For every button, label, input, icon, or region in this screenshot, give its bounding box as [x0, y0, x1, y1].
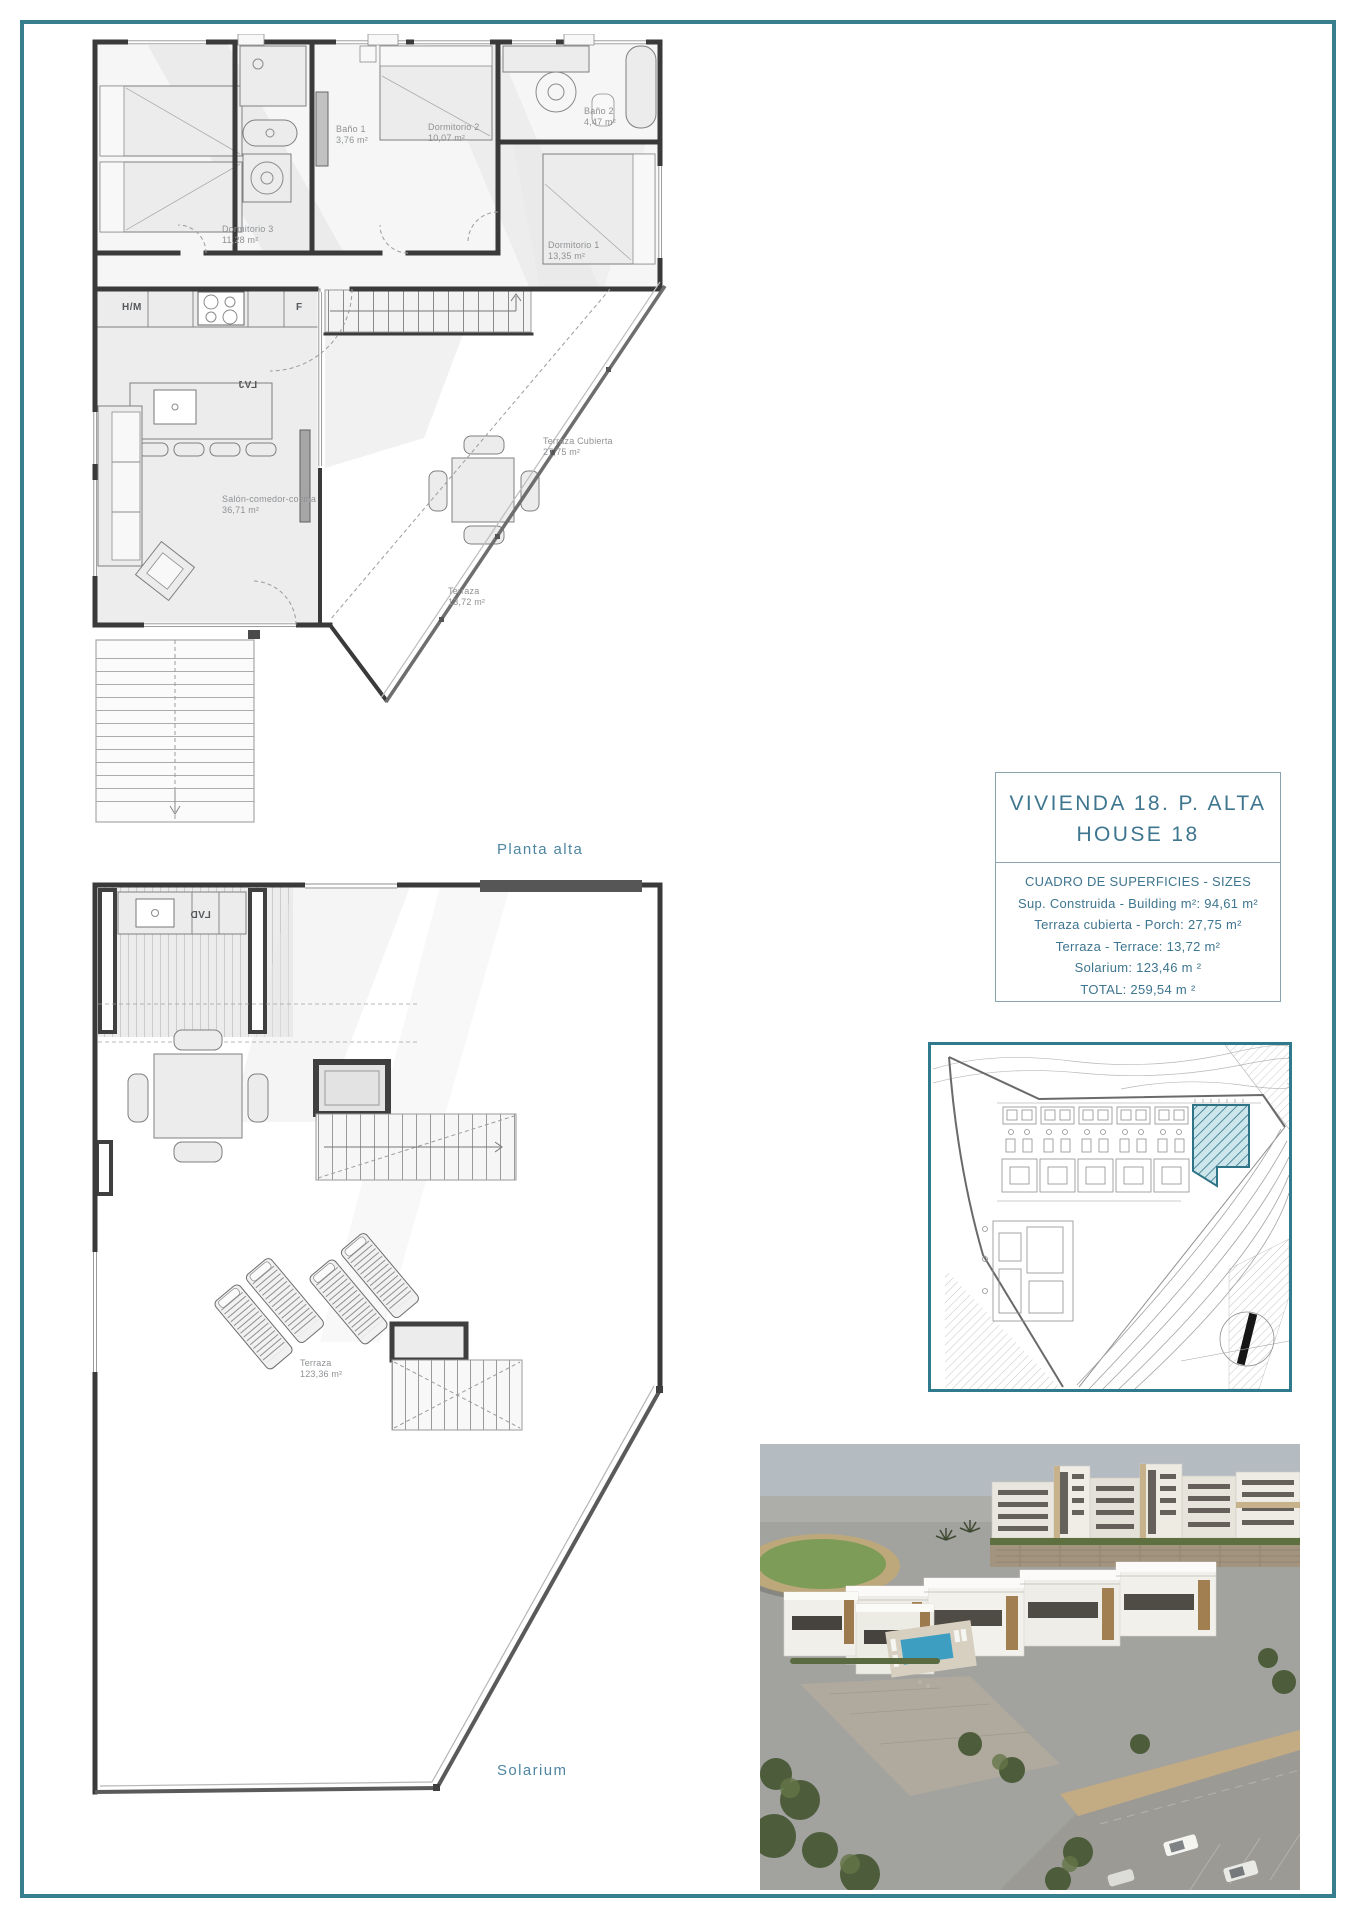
appliance-label-fridge: F: [296, 302, 303, 313]
info-row-building: Sup. Construida - Building m²: 94,61 m²: [996, 893, 1280, 915]
sun-loungers-left: [213, 1257, 325, 1371]
site-plan-drawing: [931, 1045, 1289, 1389]
parapet-top-right: [480, 880, 642, 892]
info-title: VIVIENDA 18. P. ALTA HOUSE 18: [996, 773, 1280, 850]
outdoor-kitchen-counter: [118, 892, 246, 934]
room-label-dormitorio2: Dormitorio 210,07 m²: [428, 122, 479, 143]
caption-planta-alta: Planta alta: [497, 841, 583, 858]
solarium-drawing: [80, 872, 665, 1822]
stairs-lower: [392, 1324, 522, 1430]
floor-plan-solarium: [80, 872, 665, 1822]
info-box: VIVIENDA 18. P. ALTA HOUSE 18 CUADRO DE …: [995, 772, 1281, 1002]
plan-sheet-page: Dormitorio 311,28 m² Baño 13,76 m² Dormi…: [0, 0, 1357, 1920]
info-row-porch: Terraza cubierta - Porch: 27,75 m²: [996, 914, 1280, 936]
info-row-total: TOTAL: 259,54 m ²: [996, 979, 1280, 1001]
info-title-line1: VIVIENDA 18. P. ALTA: [996, 788, 1280, 819]
floor-plan-planta-alta: [88, 34, 673, 834]
stairs-upper: [316, 1114, 516, 1180]
appliance-label-lvd: LVD: [190, 910, 211, 921]
hedge-strip: [990, 1538, 1300, 1545]
room-label-bano2: Baño 24,47 m²: [584, 106, 616, 127]
terraced-houses: [1002, 1107, 1189, 1192]
hatch-band-right: [1229, 1239, 1289, 1389]
caption-solarium: Solarium: [497, 1762, 567, 1779]
highlighted-plot-house18: [1193, 1105, 1249, 1186]
room-label-dormitorio1: Dormitorio 113,35 m²: [548, 240, 599, 261]
lawn-oval: [760, 1539, 886, 1589]
appliance-label-washer: H/M: [122, 302, 142, 313]
room-label-dormitorio3: Dormitorio 311,28 m²: [222, 224, 273, 245]
info-table-header: CUADRO DE SUPERFICIES - SIZES: [996, 871, 1280, 893]
stair-bulkhead: [316, 1062, 388, 1114]
info-surface-table: CUADRO DE SUPERFICIES - SIZES Sup. Const…: [996, 871, 1280, 1000]
room-label-terraza-cubierta: Terraza Cubierta27,75 m²: [543, 436, 613, 457]
stairs: [325, 290, 531, 332]
room-label-bano1: Baño 13,76 m²: [336, 124, 368, 145]
solarium-railing: [95, 1386, 663, 1792]
room-label-salon: Salón-comedor-cocina36,71 m²: [222, 494, 316, 515]
info-divider: [996, 862, 1280, 863]
kitchen-island: [130, 383, 276, 456]
planta-alta-drawing: [88, 34, 673, 834]
info-row-terrace: Terraza - Terrace: 13,72 m²: [996, 936, 1280, 958]
room-label-terraza: Terraza13,72 m²: [448, 586, 485, 607]
appliance-label-dishwasher: LVJ: [238, 380, 257, 391]
render-3d-image: [760, 1444, 1300, 1890]
exterior-stairs: [96, 630, 260, 822]
info-row-solarium: Solarium: 123,46 m ²: [996, 957, 1280, 979]
info-title-line2: HOUSE 18: [996, 819, 1280, 850]
pool-building-block: [983, 1221, 1074, 1321]
render-3d: [760, 1444, 1300, 1890]
site-plan: [928, 1042, 1292, 1392]
dining-table: [429, 436, 539, 544]
room-label-solarium-terraza: Terraza123,36 m²: [300, 1358, 342, 1379]
